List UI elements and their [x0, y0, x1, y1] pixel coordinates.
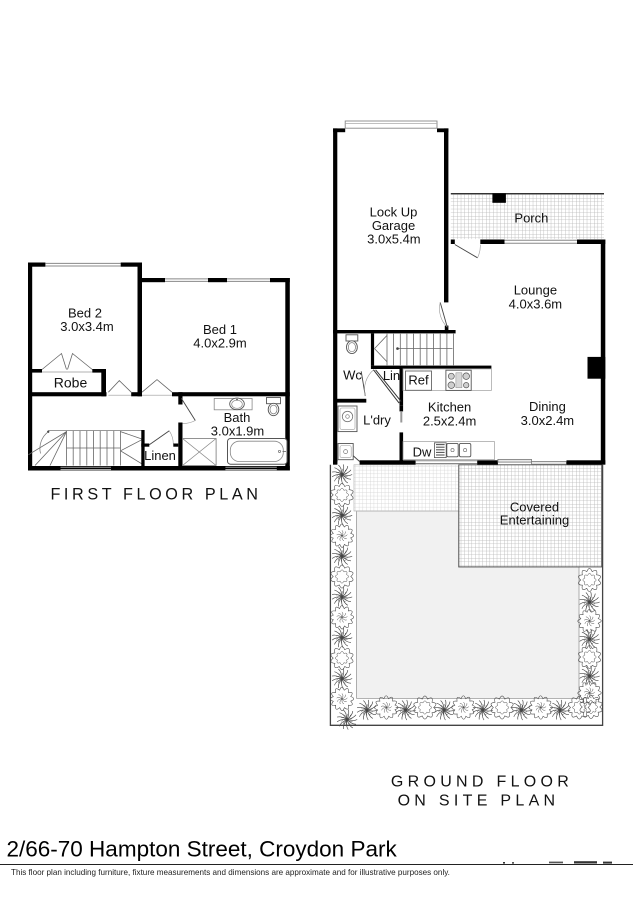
svg-text:Linen: Linen — [144, 448, 176, 463]
svg-text:3.0x2.4m: 3.0x2.4m — [521, 413, 574, 428]
svg-text:ON SITE PLAN: ON SITE PLAN — [398, 793, 560, 810]
svg-text:Kitchen: Kitchen — [428, 400, 471, 415]
svg-text:Entertaining: Entertaining — [500, 513, 569, 528]
svg-text:Robe: Robe — [54, 375, 88, 391]
svg-text:GROUND FLOOR: GROUND FLOOR — [391, 774, 573, 791]
svg-text:Wc: Wc — [343, 368, 362, 383]
svg-text:4.0x3.6m: 4.0x3.6m — [509, 297, 562, 312]
svg-text:3.0x5.4m: 3.0x5.4m — [367, 232, 420, 247]
svg-text:Dw: Dw — [413, 445, 432, 460]
svg-text:Lin: Lin — [383, 368, 400, 383]
svg-text:Dining: Dining — [529, 399, 566, 414]
svg-text:Porch: Porch — [514, 211, 548, 226]
svg-text:4.0x2.9m: 4.0x2.9m — [193, 336, 246, 351]
svg-text:3.0x1.9m: 3.0x1.9m — [211, 424, 264, 439]
svg-text:Lounge: Lounge — [514, 283, 557, 298]
svg-text:3.0x3.4m: 3.0x3.4m — [60, 319, 113, 334]
svg-text:L'dry: L'dry — [363, 413, 391, 428]
svg-text:FIRST FLOOR PLAN: FIRST FLOOR PLAN — [50, 486, 261, 504]
svg-text:2.5x2.4m: 2.5x2.4m — [423, 414, 476, 429]
svg-text:This floor plan including furn: This floor plan including furniture, fix… — [11, 868, 450, 877]
svg-text:Ref: Ref — [408, 373, 429, 388]
svg-text:2/66-70 Hampton Street, Croydo: 2/66-70 Hampton Street, Croydon Park — [7, 837, 398, 862]
